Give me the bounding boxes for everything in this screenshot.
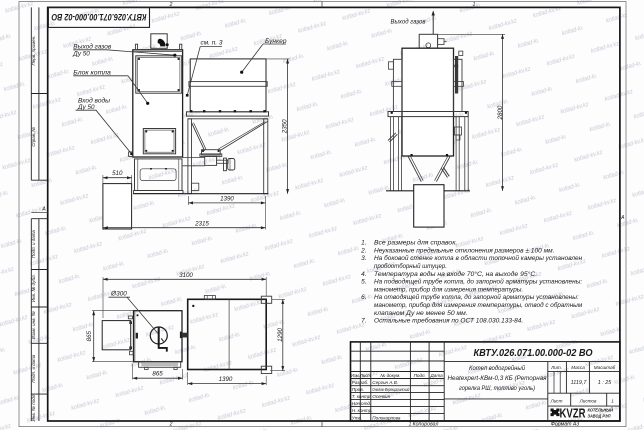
svg-text:1390: 1390: [220, 196, 234, 203]
svg-text:1.: 1.: [361, 240, 367, 247]
svg-text:КВТУ.026.071.00.000-02 ВО: КВТУ.026.071.00.000-02 ВО: [51, 12, 146, 22]
svg-text:Лит.: Лит.: [550, 365, 562, 370]
svg-text:Подп. и дата: Подп. и дата: [31, 230, 37, 258]
svg-text:манометр, прибор для измерения: манометр, прибор для измерения температу…: [374, 301, 583, 309]
svg-text:Поликарпова: Поликарпова: [372, 415, 401, 420]
svg-text:865: 865: [86, 330, 93, 341]
svg-text:Лист: Лист: [550, 399, 563, 404]
svg-text:Изм.: Изм.: [351, 373, 360, 378]
svg-text:510: 510: [112, 170, 123, 177]
svg-text:Утв.: Утв.: [352, 415, 362, 420]
svg-text:Масштаб: Масштаб: [594, 365, 616, 370]
svg-text:Нач.отд.: Нач.отд.: [352, 401, 371, 406]
svg-text:Пров.: Пров.: [352, 387, 364, 392]
svg-text:см. п. 3: см. п. 3: [201, 39, 223, 46]
svg-text:Онегов-Верещагинский: Онегов-Верещагинский: [372, 386, 409, 392]
svg-text:Все размеры для справок.: Все размеры для справок.: [374, 239, 457, 247]
svg-text:Масса: Масса: [571, 365, 585, 370]
svg-text:3.: 3.: [361, 255, 367, 262]
svg-text:6.: 6.: [361, 294, 367, 301]
svg-text:1290: 1290: [277, 328, 284, 342]
svg-text:1: 1: [473, 2, 476, 8]
svg-text:1 : 25: 1 : 25: [598, 380, 612, 386]
svg-text:Инв. № подл.: Инв. № подл.: [31, 394, 37, 422]
svg-text:2800: 2800: [497, 105, 504, 120]
svg-text:Осечкин: Осечкин: [372, 394, 390, 399]
svg-text:пробоотборный штуцер.: пробоотборный штуцер.: [374, 262, 447, 270]
svg-text:Котел водогрейный: Котел водогрейный: [469, 365, 526, 372]
svg-text:1390: 1390: [219, 376, 233, 383]
svg-text:1119,7: 1119,7: [571, 380, 588, 386]
svg-text:2.: 2.: [360, 247, 367, 254]
svg-text:КВТУ.026.071.00.000-02 ВО: КВТУ.026.071.00.000-02 ВО: [474, 348, 593, 359]
svg-text:1: 1: [409, 421, 412, 427]
svg-text:2315: 2315: [194, 220, 209, 227]
svg-text:Сергин А.В.: Сергин А.В.: [372, 380, 398, 385]
svg-text:Подп.: Подп.: [414, 373, 426, 378]
svg-text:Неуказанные предельные отклоне: Неуказанные предельные отклонения размер…: [374, 246, 555, 254]
svg-text:Дата: Дата: [430, 373, 444, 378]
svg-text:Ø300: Ø300: [110, 290, 127, 297]
svg-text:Т. контр.: Т. контр.: [352, 394, 372, 399]
svg-text:Выход газов: Выход газов: [391, 18, 427, 26]
svg-text:Листов: Листов: [579, 399, 597, 404]
svg-text:Разраб.: Разраб.: [352, 380, 369, 385]
svg-text:Инв. № дубл.: Инв. № дубл.: [31, 274, 37, 302]
svg-text:На отводящей трубе котла, до з: На отводящей трубе котла, до запорной ар…: [374, 293, 579, 301]
svg-text:KVZR: KVZR: [560, 405, 586, 420]
svg-text:ЗАВОД РЭП: ЗАВОД РЭП: [588, 414, 611, 420]
svg-text:4.: 4.: [361, 271, 367, 278]
svg-text:На боковой стенке котла в обла: На боковой стенке котла в области топочн…: [374, 254, 583, 262]
svg-text:Н. контр.: Н. контр.: [352, 408, 373, 413]
svg-text:клапаном Ду не менее 50 мм.: клапаном Ду не менее 50 мм.: [374, 310, 468, 317]
svg-text:Выход газов: Выход газов: [73, 43, 112, 51]
svg-text:Формат А3: Формат А3: [551, 421, 579, 427]
svg-text:Блок котла: Блок котла: [73, 69, 111, 76]
svg-text:5.: 5.: [361, 279, 367, 286]
svg-text:1: 1: [611, 399, 614, 404]
svg-text:№ докум.: № докум.: [380, 373, 400, 378]
svg-text:Ду 50: Ду 50: [72, 51, 90, 58]
svg-text:Heatexpert-КВм-0,3 КБ (Реторна: Heatexpert-КВм-0,3 КБ (Реторная: [448, 375, 548, 382]
svg-text:2: 2: [169, 2, 173, 8]
svg-text:горелка РШ, топливо уголь): горелка РШ, топливо уголь): [459, 385, 535, 392]
svg-text:2350: 2350: [282, 119, 289, 134]
svg-text:Температура воды на входе 70°С: Температура воды на входе 70°С, на выход…: [374, 270, 537, 278]
svg-text:А: А: [620, 215, 625, 221]
svg-text:865: 865: [152, 371, 163, 378]
svg-text:Подп. и дата: Подп. и дата: [31, 354, 37, 382]
svg-text:Перв. примен.: Перв. примен.: [31, 36, 37, 66]
svg-text:2: 2: [169, 421, 173, 427]
svg-text:манометр, прибор для измерения: манометр, прибор для измерения температу…: [374, 285, 523, 293]
svg-text:Лист: Лист: [359, 373, 371, 378]
svg-text:Справ. №: Справ. №: [31, 127, 37, 147]
svg-text:На подводящей трубе котла, до: На подводящей трубе котла, до запорной а…: [374, 278, 582, 286]
svg-text:Копировал: Копировал: [413, 421, 439, 427]
svg-text:3100: 3100: [179, 272, 193, 279]
svg-text:Остальные требования по ОСТ 10: Остальные требования по ОСТ 108.030.133-…: [374, 317, 523, 325]
svg-text:7.: 7.: [361, 318, 367, 325]
svg-text:А: А: [41, 207, 46, 213]
svg-text:Взам. инв. №: Взам. инв. №: [31, 311, 37, 339]
